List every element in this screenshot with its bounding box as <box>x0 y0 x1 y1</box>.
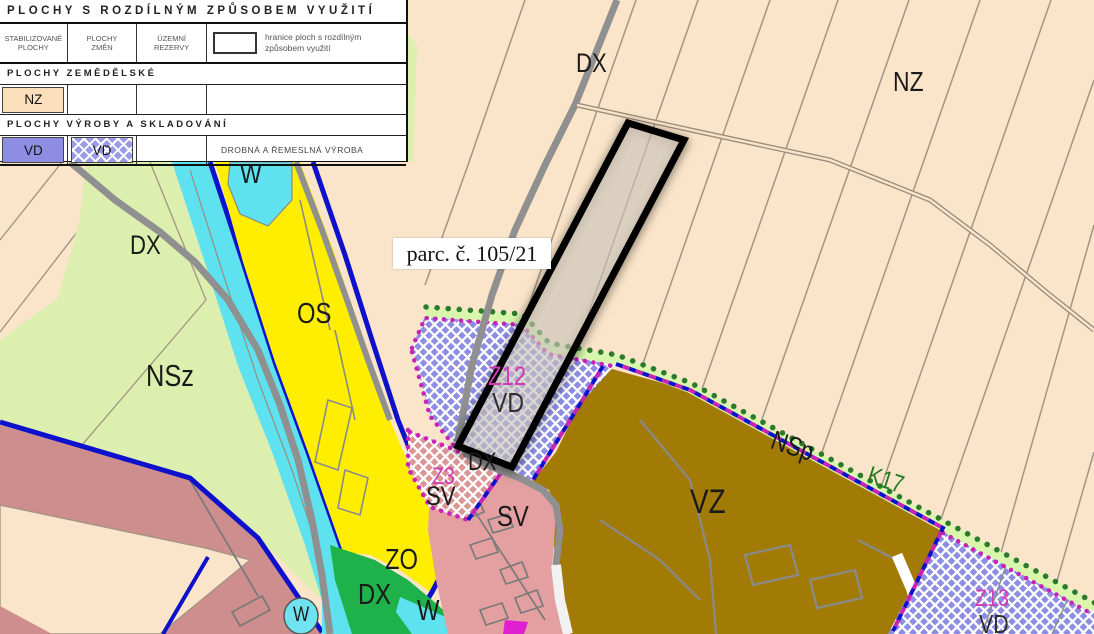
zone-label-w-bottom: W <box>417 597 439 626</box>
legend-boundary-note: hranice ploch s rozdílným způsobem využi… <box>265 32 400 54</box>
parcel-number-label: parc. č. 105/21 <box>393 238 551 269</box>
legend-col-changes: PLOCHY ZMĚN <box>68 24 138 62</box>
map-legend: PLOCHY S ROZDÍLNÝM ZPŮSOBEM VYUŽITÍ STAB… <box>0 0 408 162</box>
water-symbol-letter: W <box>293 604 309 625</box>
zone-label-sv-main: SV <box>497 503 529 532</box>
legend-section-agriculture: PLOCHY ZEMĚDĚLSKÉ <box>0 64 406 85</box>
zone-label-dx-mid: DX <box>468 450 496 475</box>
zone-label-zo: ZO <box>385 546 418 575</box>
legend-section-production: PLOCHY VÝROBY A SKLADOVÁNÍ <box>0 115 406 136</box>
vd-swatch-stabilized: VD <box>2 137 64 163</box>
boundary-swatch-icon <box>213 32 257 54</box>
zone-label-dx-top: DX <box>576 50 607 77</box>
zone-label-dx-left: DX <box>130 232 161 259</box>
zone-label-vz: VZ <box>690 485 726 519</box>
legend-row-vd: VD VD DROBNÁ A ŘEMESLNÁ VÝROBA <box>0 136 406 166</box>
zone-label-vd-z12: VD <box>492 389 524 417</box>
zoning-map-viewport: DX NZ DX W OS NSz Z12 VD Z3 SV SV DX ZO … <box>0 0 1094 634</box>
legend-title: PLOCHY S ROZDÍLNÝM ZPŮSOBEM VYUŽITÍ <box>0 0 406 24</box>
legend-col-stabilized: STABILIZOVANÉ PLOCHY <box>0 24 68 62</box>
zone-label-sv-z3: SV <box>426 483 456 510</box>
zone-label-z12: Z12 <box>488 363 526 390</box>
zone-label-nsz: NSz <box>146 360 194 391</box>
zone-label-os: OS <box>297 300 331 329</box>
vd-swatch-changes: VD <box>71 137 133 163</box>
vd-description: DROBNÁ A ŘEMESLNÁ VÝROBA <box>207 136 406 164</box>
legend-header-row: STABILIZOVANÉ PLOCHY PLOCHY ZMĚN ÚZEMNÍ … <box>0 24 406 64</box>
legend-row-nz: NZ <box>0 85 406 115</box>
zone-label-vd-z13: VD <box>979 611 1009 634</box>
legend-col-reserves: ÚZEMNÍ REZERVY <box>137 24 207 62</box>
change-spot-magenta <box>503 620 528 634</box>
zone-label-nz: NZ <box>893 68 924 96</box>
zone-label-z13: Z13 <box>975 587 1009 611</box>
nz-swatch: NZ <box>2 87 64 113</box>
zone-label-dx-bottom: DX <box>358 581 391 610</box>
